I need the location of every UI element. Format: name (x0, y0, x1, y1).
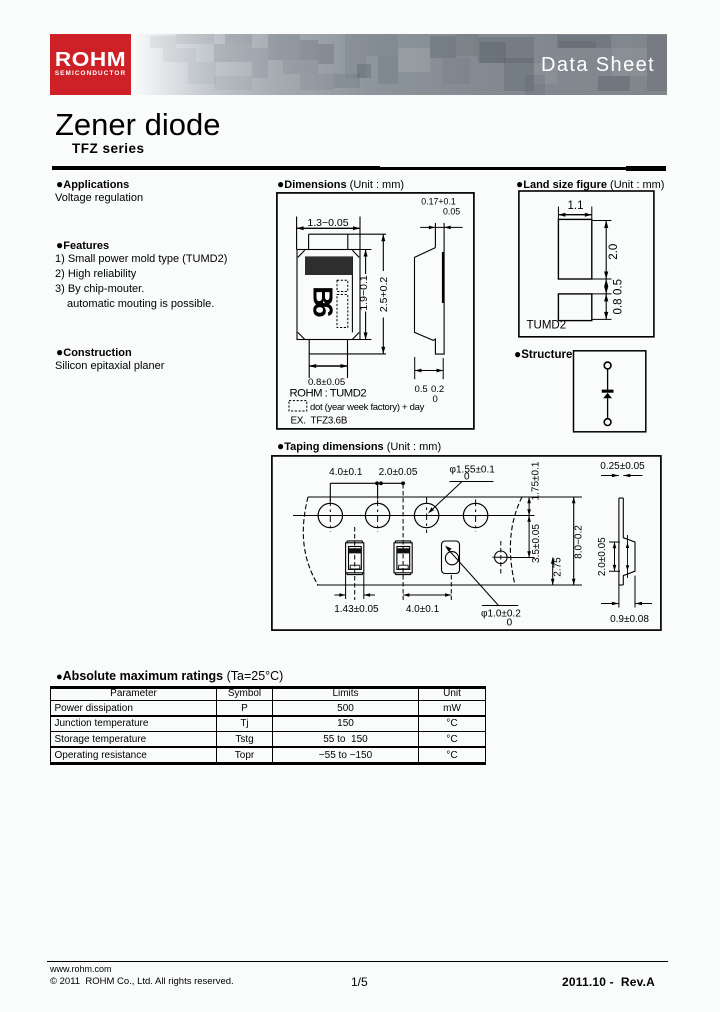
svg-text:4.0±0.1: 4.0±0.1 (406, 604, 440, 615)
svg-text:0.5: 0.5 (415, 384, 428, 395)
svg-text:0.8±0.05: 0.8±0.05 (308, 377, 345, 388)
svg-text:2.0±0.05: 2.0±0.05 (597, 537, 608, 576)
svg-text:0: 0 (507, 618, 513, 629)
svg-text:8.0−0.2: 8.0−0.2 (574, 525, 585, 559)
svg-text:1.3−0.05: 1.3−0.05 (307, 217, 348, 229)
svg-text:EX. TFZ3.6B: EX. TFZ3.6B (291, 416, 348, 427)
svg-text:0.05: 0.05 (443, 207, 460, 217)
svg-text:1.43±0.05: 1.43±0.05 (334, 604, 379, 615)
svg-text:0.9±0.08: 0.9±0.08 (610, 614, 649, 625)
svg-text:φ1.55±0.1: φ1.55±0.1 (450, 465, 496, 476)
svg-text:2.75: 2.75 (553, 557, 564, 577)
svg-text:2.0±0.05: 2.0±0.05 (379, 467, 418, 478)
svg-text:2.0: 2.0 (608, 244, 620, 260)
svg-text:φ1.0±0.2: φ1.0±0.2 (481, 609, 521, 620)
svg-text:4.0±0.1: 4.0±0.1 (329, 467, 363, 478)
svg-text:0: 0 (433, 394, 438, 405)
svg-text:0.17+0.1: 0.17+0.1 (421, 197, 456, 207)
svg-text:TUMD2: TUMD2 (527, 320, 567, 332)
svg-text:6: 6 (308, 302, 339, 318)
svg-text:1.1: 1.1 (568, 200, 584, 212)
svg-text:0.5: 0.5 (613, 279, 625, 295)
svg-text:dot (year week factory) + day: dot (year week factory) + day (310, 402, 425, 413)
svg-text:ROHM : TUMD2: ROHM : TUMD2 (290, 388, 367, 400)
svg-text:0.8: 0.8 (613, 299, 625, 315)
svg-text:1.9−0.1: 1.9−0.1 (358, 275, 370, 310)
svg-text:1.75±0.1: 1.75±0.1 (531, 461, 542, 500)
svg-text:0: 0 (464, 472, 470, 483)
svg-text:2.5+0.2: 2.5+0.2 (378, 277, 390, 312)
svg-text:0.25±0.05: 0.25±0.05 (600, 461, 645, 472)
svg-text:3.5±0.05: 3.5±0.05 (531, 524, 542, 563)
